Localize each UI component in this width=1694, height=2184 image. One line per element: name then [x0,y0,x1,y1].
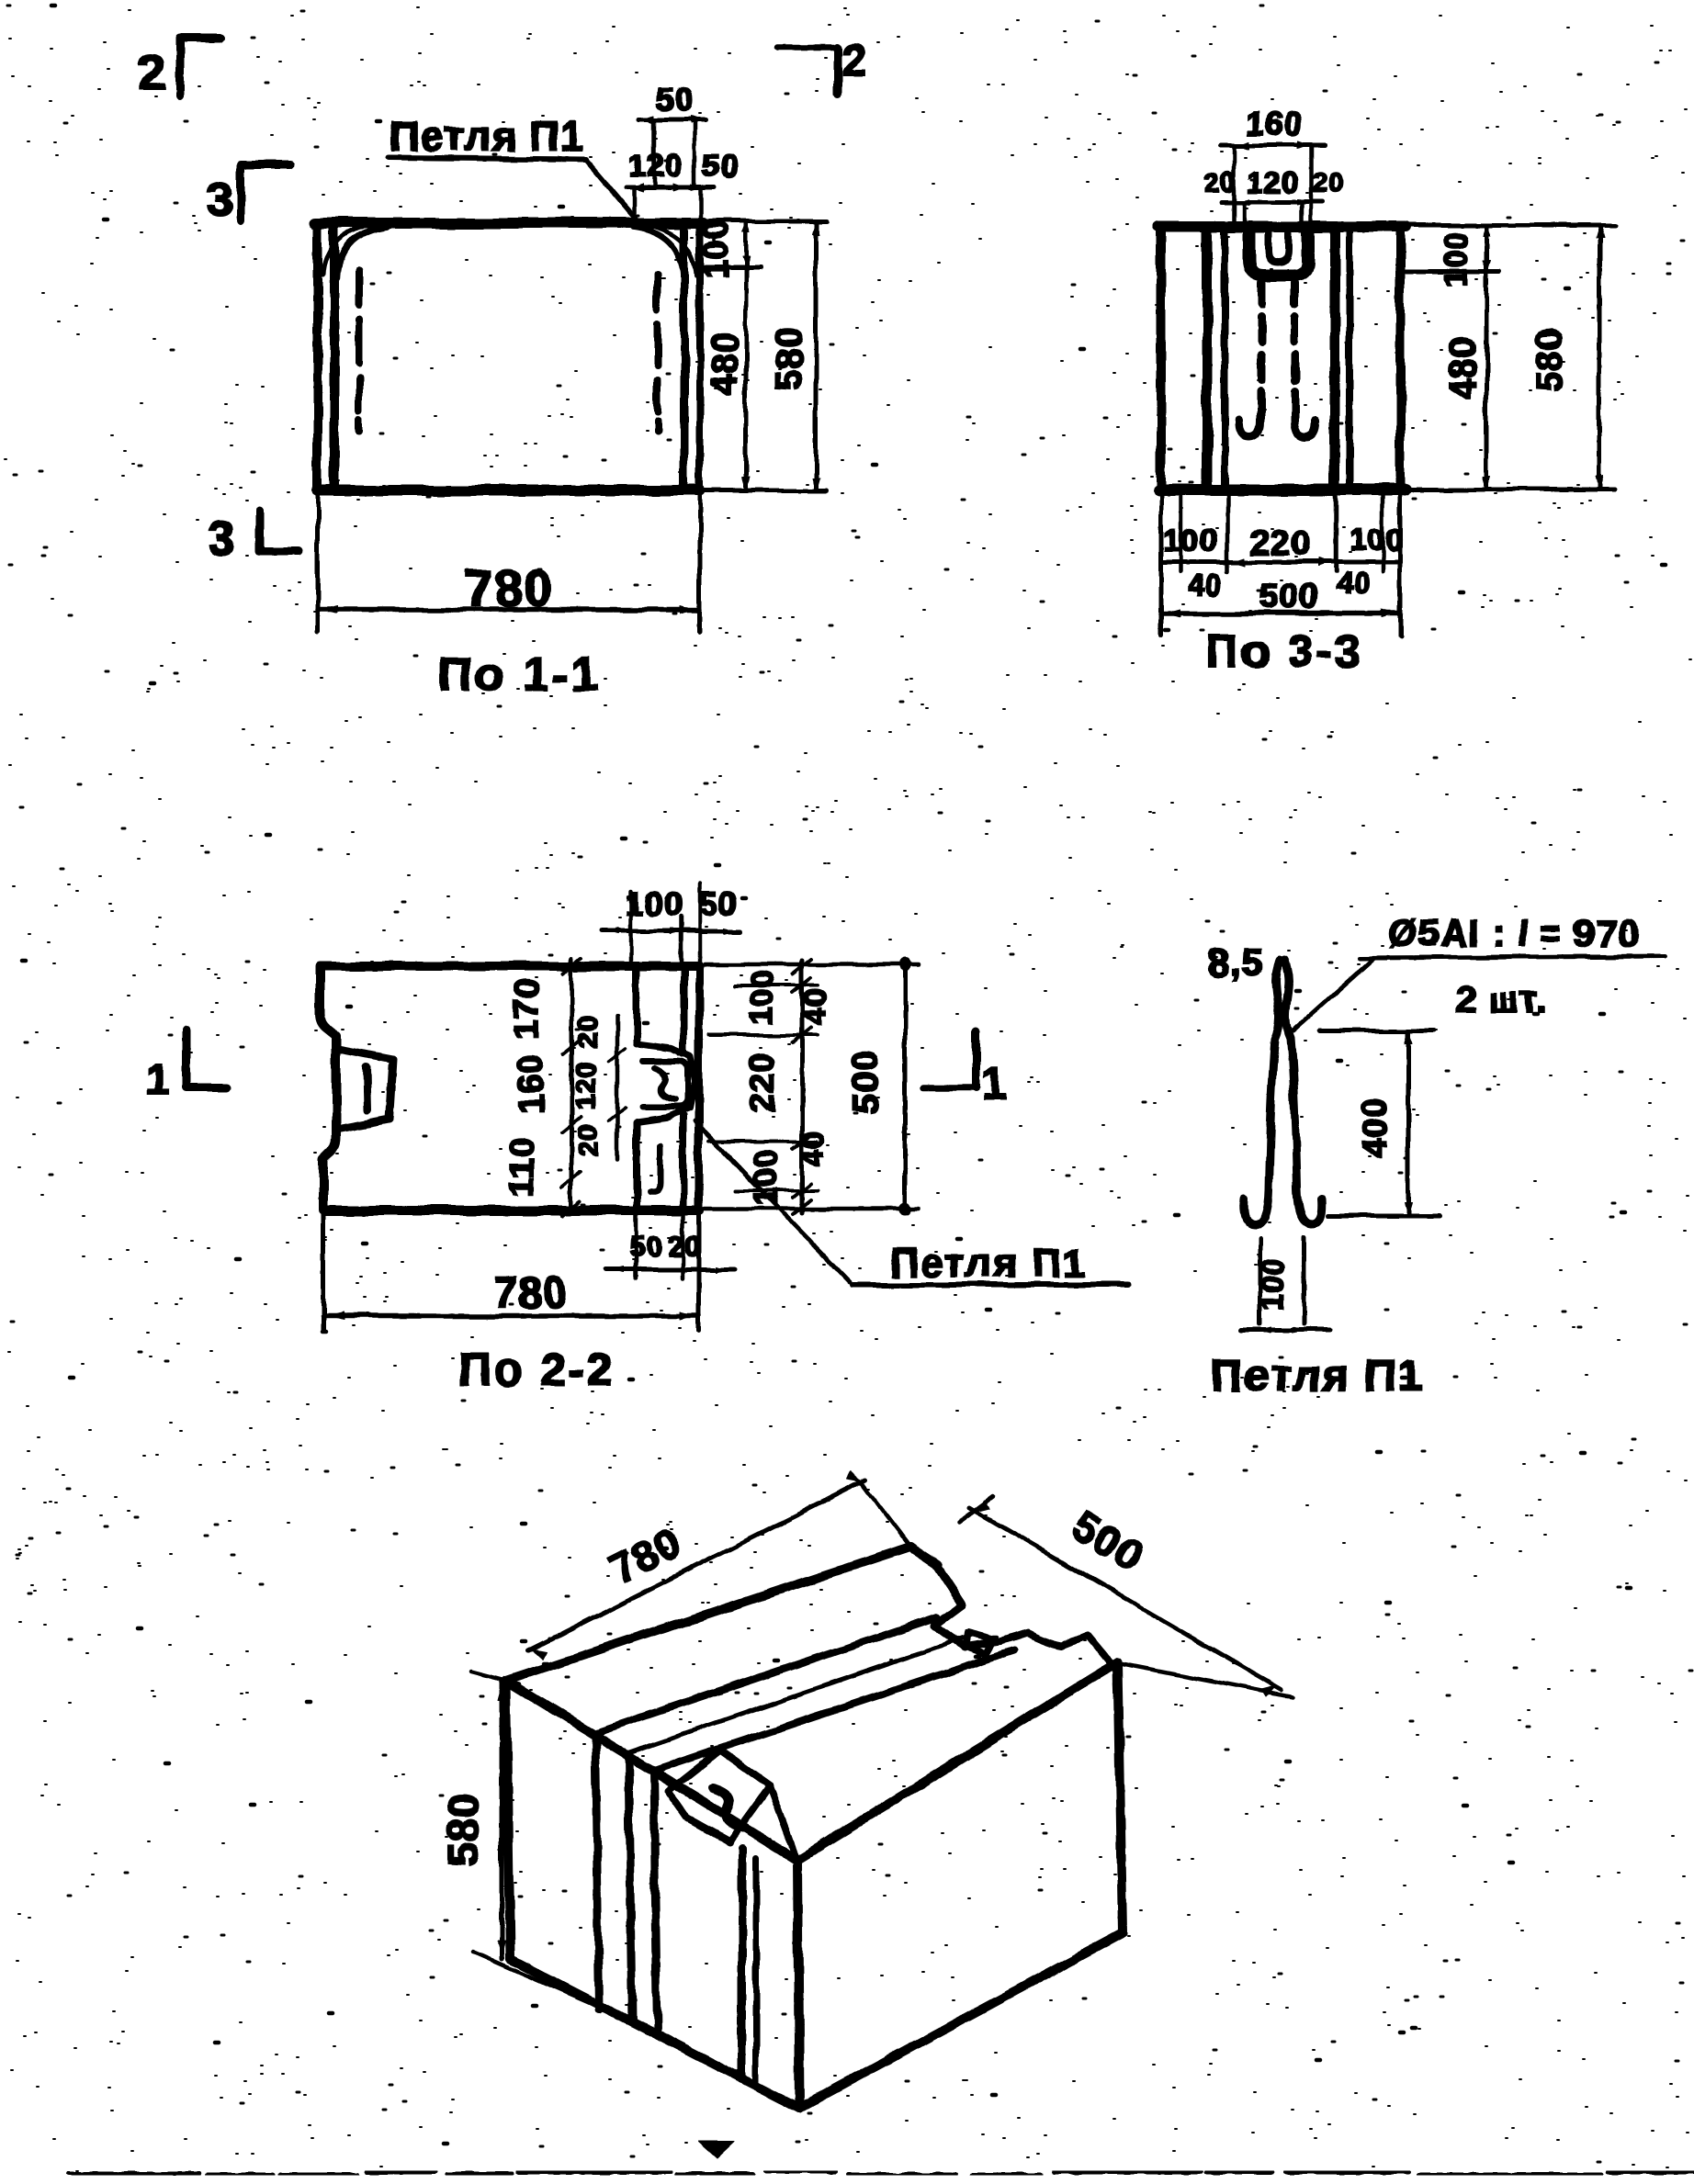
svg-text:780: 780 [493,1268,568,1317]
svg-text:780: 780 [465,559,553,617]
svg-text:480: 480 [705,332,745,396]
svg-text:100: 100 [1349,523,1404,557]
svg-text:120: 120 [1248,166,1299,199]
svg-text:2: 2 [138,43,167,101]
svg-text:500: 500 [845,1050,886,1114]
svg-text:50: 50 [657,83,694,118]
svg-text:3: 3 [209,512,236,566]
svg-text:100: 100 [1439,231,1474,287]
svg-text:40: 40 [1188,569,1223,602]
svg-text:По 2-2: По 2-2 [458,1344,615,1395]
svg-text:20: 20 [1203,168,1236,198]
svg-text:400: 400 [1356,1098,1395,1158]
svg-text:1: 1 [145,1053,172,1105]
svg-text:170: 170 [507,978,546,1039]
svg-text:580: 580 [769,326,809,390]
svg-text:120: 120 [628,149,683,184]
svg-text:20: 20 [573,1016,604,1048]
svg-text:580: 580 [439,1793,487,1866]
svg-text:100: 100 [696,220,734,278]
svg-text:1: 1 [981,1060,1007,1109]
svg-text:40: 40 [798,988,833,1025]
svg-text:40: 40 [1337,566,1372,599]
svg-text:120: 120 [570,1061,602,1111]
svg-text:40: 40 [796,1130,831,1166]
svg-text:Петля П1: Петля П1 [390,113,584,160]
svg-text:8,5: 8,5 [1208,940,1264,984]
svg-text:50: 50 [699,884,738,922]
svg-text:3: 3 [207,173,234,226]
svg-text:100: 100 [625,884,683,922]
svg-text:2: 2 [841,37,867,85]
svg-text:По 3-3: По 3-3 [1206,625,1363,677]
svg-text:220: 220 [1250,524,1311,563]
svg-text:160: 160 [513,1053,551,1114]
svg-text:20: 20 [573,1123,604,1155]
svg-text:160: 160 [1246,107,1302,142]
svg-text:Петля П1: Петля П1 [1211,1352,1424,1401]
svg-text:480: 480 [1443,335,1484,400]
svg-text:Петля П1: Петля П1 [890,1241,1087,1286]
svg-text:220: 220 [744,1052,783,1112]
svg-text:100: 100 [1163,523,1218,558]
svg-text:580: 580 [1530,328,1570,392]
svg-text:По 1-1: По 1-1 [438,648,601,702]
svg-text:110: 110 [503,1137,542,1196]
svg-text:500: 500 [1259,578,1320,616]
svg-text:100: 100 [744,969,780,1025]
svg-text:50: 50 [702,149,739,184]
svg-text:Ø5АI : l = 970: Ø5АI : l = 970 [1389,912,1640,954]
svg-text:20: 20 [1312,168,1344,198]
